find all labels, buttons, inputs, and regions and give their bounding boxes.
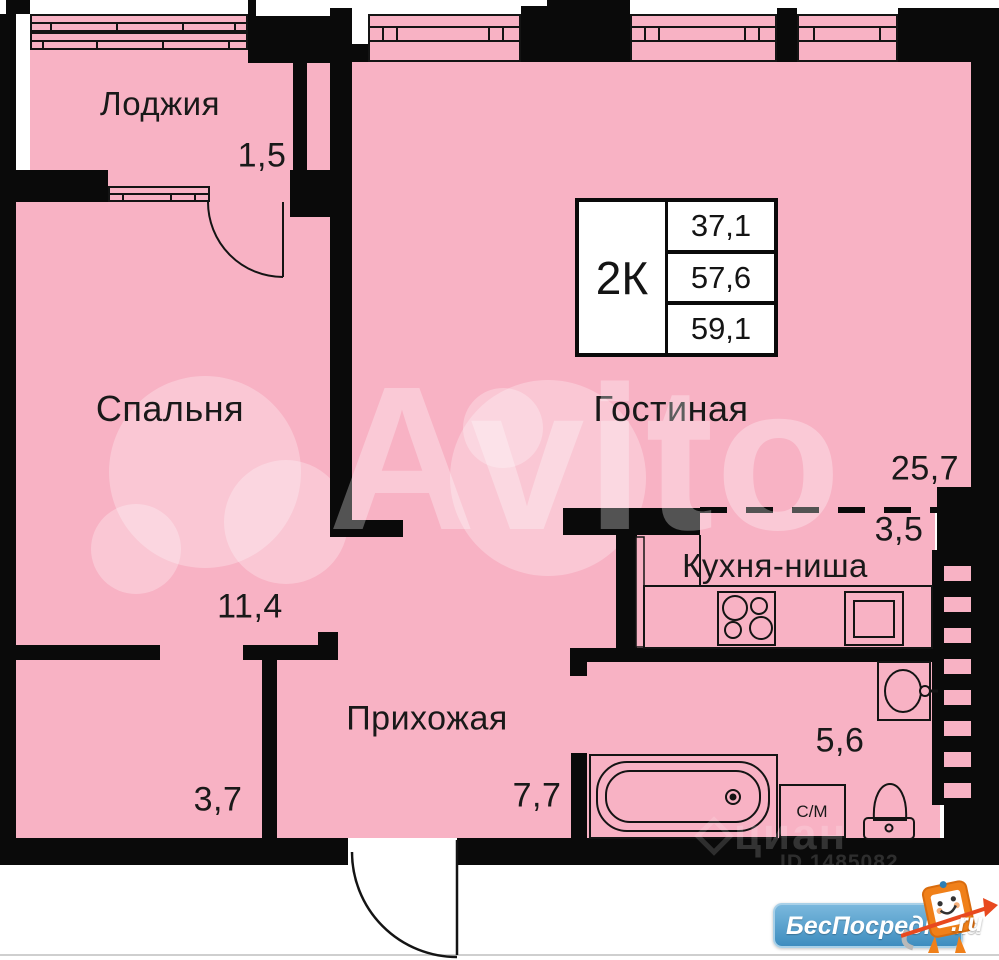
window-mullion (813, 26, 815, 42)
mascot-leg (955, 936, 966, 953)
area-closet: 3,7 (194, 781, 243, 820)
mascot-arrowhead (983, 898, 998, 917)
window-line (632, 26, 775, 28)
window-mullion (658, 26, 660, 42)
window-mullion (758, 26, 760, 42)
wall-bedroom-bottom-left (14, 645, 160, 660)
wall-bathroom-door-jamb (570, 662, 587, 676)
window-mullion (502, 26, 504, 42)
window-line (32, 40, 246, 42)
area-hallway: 7,7 (513, 777, 562, 816)
total-area-value: 57,6 (668, 254, 774, 302)
apartment-type: 2К (579, 202, 668, 353)
wall-tab (248, 0, 256, 16)
loggia-glazing-outer (30, 14, 248, 32)
wall-shaft-bottom (944, 805, 971, 838)
mascot-icon (901, 878, 999, 958)
wall-outer-left (0, 14, 16, 865)
living-area-value: 37,1 (668, 202, 774, 254)
window-line (632, 40, 775, 42)
area-bedroom: 11,4 (217, 588, 283, 627)
window-mullion (96, 40, 98, 49)
wall-outer-right (971, 8, 999, 865)
area-bathroom: 5,6 (816, 722, 865, 761)
wall-closet (262, 660, 277, 838)
watermark-circle (91, 504, 181, 594)
window-line (370, 40, 519, 42)
window-mullion (42, 40, 44, 49)
window-line (32, 22, 246, 24)
wall-outer-bottom-left (0, 838, 348, 865)
window-mullion (182, 22, 184, 31)
wall-tab (6, 0, 30, 14)
window-mullion (122, 193, 124, 200)
wall-bathroom-top (570, 648, 940, 662)
wall-top-right-block (898, 8, 971, 62)
apartment-areas: 37,1 57,6 59,1 (668, 202, 774, 353)
wall-loggia-right (293, 63, 307, 173)
loggia-glazing-inner (30, 32, 248, 50)
wall-bedroom-bottom-right (243, 645, 338, 660)
wall-bathroom-left (571, 753, 587, 838)
window-mullion (234, 22, 236, 31)
area-loggia: 1,5 (238, 137, 287, 176)
wall-shaft-spine (932, 550, 944, 805)
wall-window-pillar (777, 8, 797, 62)
window-mullion (396, 26, 398, 42)
entrance-door-arc (352, 852, 457, 957)
window-mullion (50, 22, 52, 31)
wall-notch (318, 632, 338, 645)
wall-loggia-bottom-left (0, 170, 108, 202)
room-area-niche (307, 63, 330, 170)
besposrednika-logo: БесПосредника .ru (745, 878, 999, 960)
avito-watermark: Avito (328, 362, 843, 557)
floor-plan: Лоджия 1,5 Спальня 11,4 Гостиная 25,7 3,… (0, 0, 999, 960)
window-mullion (744, 26, 746, 42)
wall-top-mid-block (547, 0, 630, 62)
window-living-1 (368, 14, 521, 62)
window-bedroom-loggia (108, 186, 210, 202)
label-hallway: Прихожая (346, 700, 508, 739)
ventilation-shaft-hatch (944, 550, 971, 805)
window-mullion (162, 40, 164, 49)
window-mullion (170, 193, 172, 200)
area-living: 25,7 (891, 450, 959, 489)
site-domain-suffix: .ru (951, 909, 983, 938)
wall-shaft-top (937, 487, 971, 550)
mascot-leg (928, 936, 939, 953)
window-mullion (228, 40, 230, 49)
window-mullion (194, 193, 196, 200)
window-mullion (116, 22, 118, 31)
label-bedroom: Спальня (96, 388, 244, 430)
window-line (370, 26, 519, 28)
wall-window-pillar (521, 6, 547, 62)
cian-id-watermark: ID 1485082 (780, 851, 899, 875)
label-loggia: Лоджия (100, 85, 220, 123)
window-mullion (879, 26, 881, 42)
window-mullion (644, 26, 646, 42)
window-mullion (382, 26, 384, 42)
wall-loggia-right-block (248, 16, 330, 63)
window-mullion (488, 26, 490, 42)
window-living-3 (797, 14, 898, 62)
apartment-info-box: 2К 37,1 57,6 59,1 (575, 198, 778, 357)
wall-top-piece (352, 44, 368, 62)
window-living-2 (630, 14, 777, 62)
wall-outer-bottom-right (457, 838, 999, 865)
area-kitchen: 3,5 (875, 511, 924, 550)
